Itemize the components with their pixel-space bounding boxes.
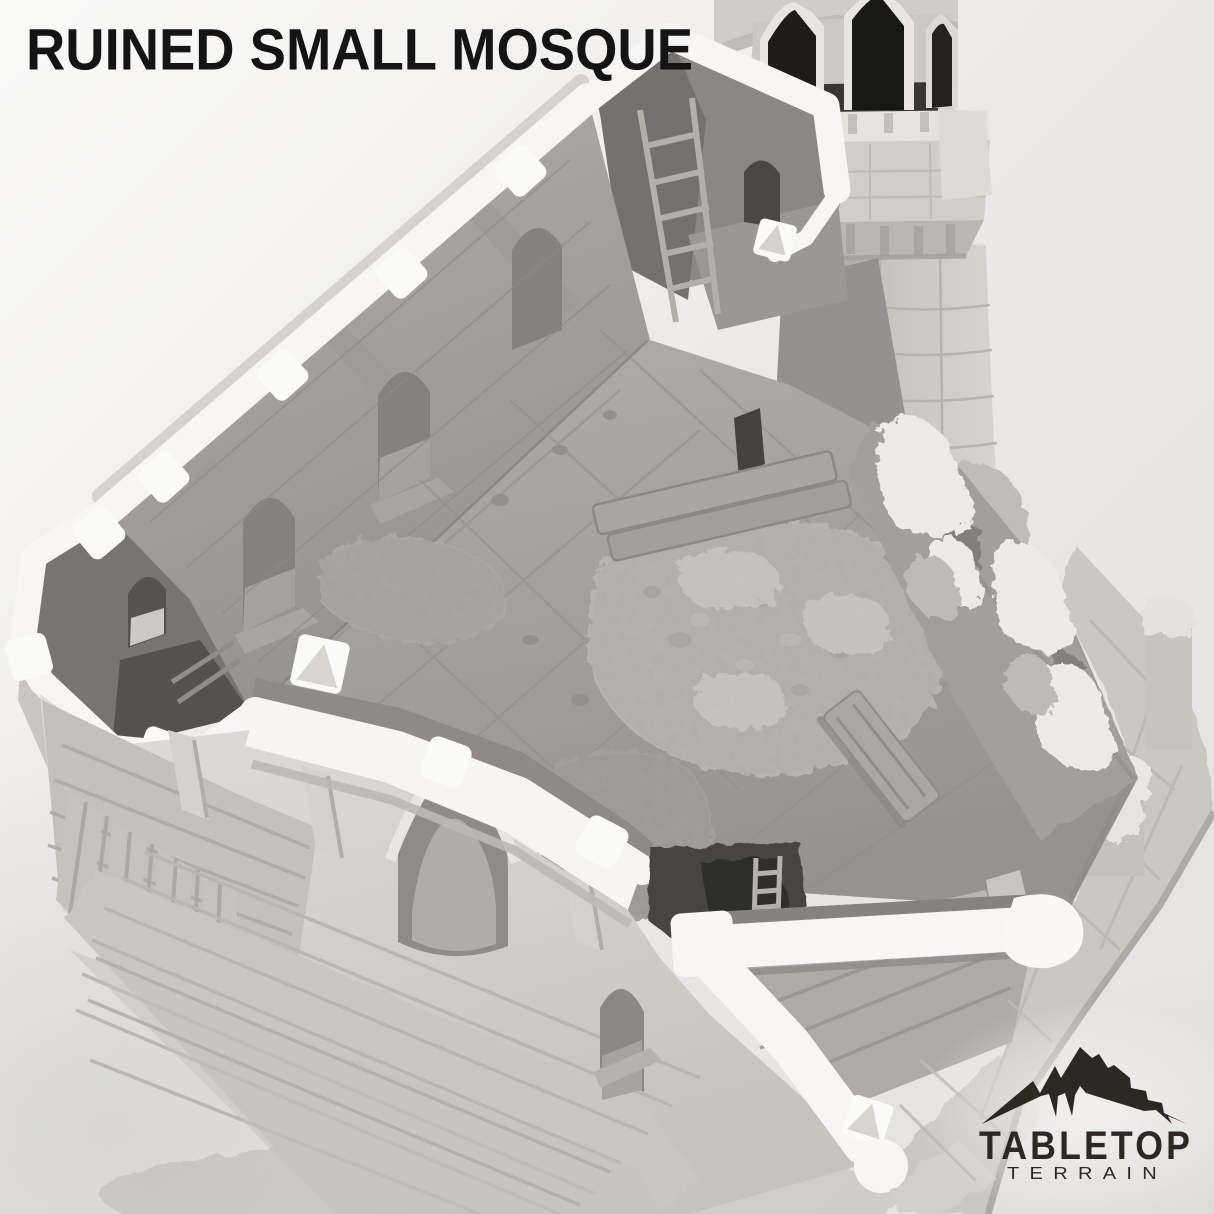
svg-text:TERRAIN: TERRAIN	[1007, 1163, 1167, 1183]
svg-text:RUINED SMALL MOSQUE: RUINED SMALL MOSQUE	[26, 18, 693, 83]
svg-text:TABLETOP: TABLETOP	[979, 1124, 1193, 1168]
